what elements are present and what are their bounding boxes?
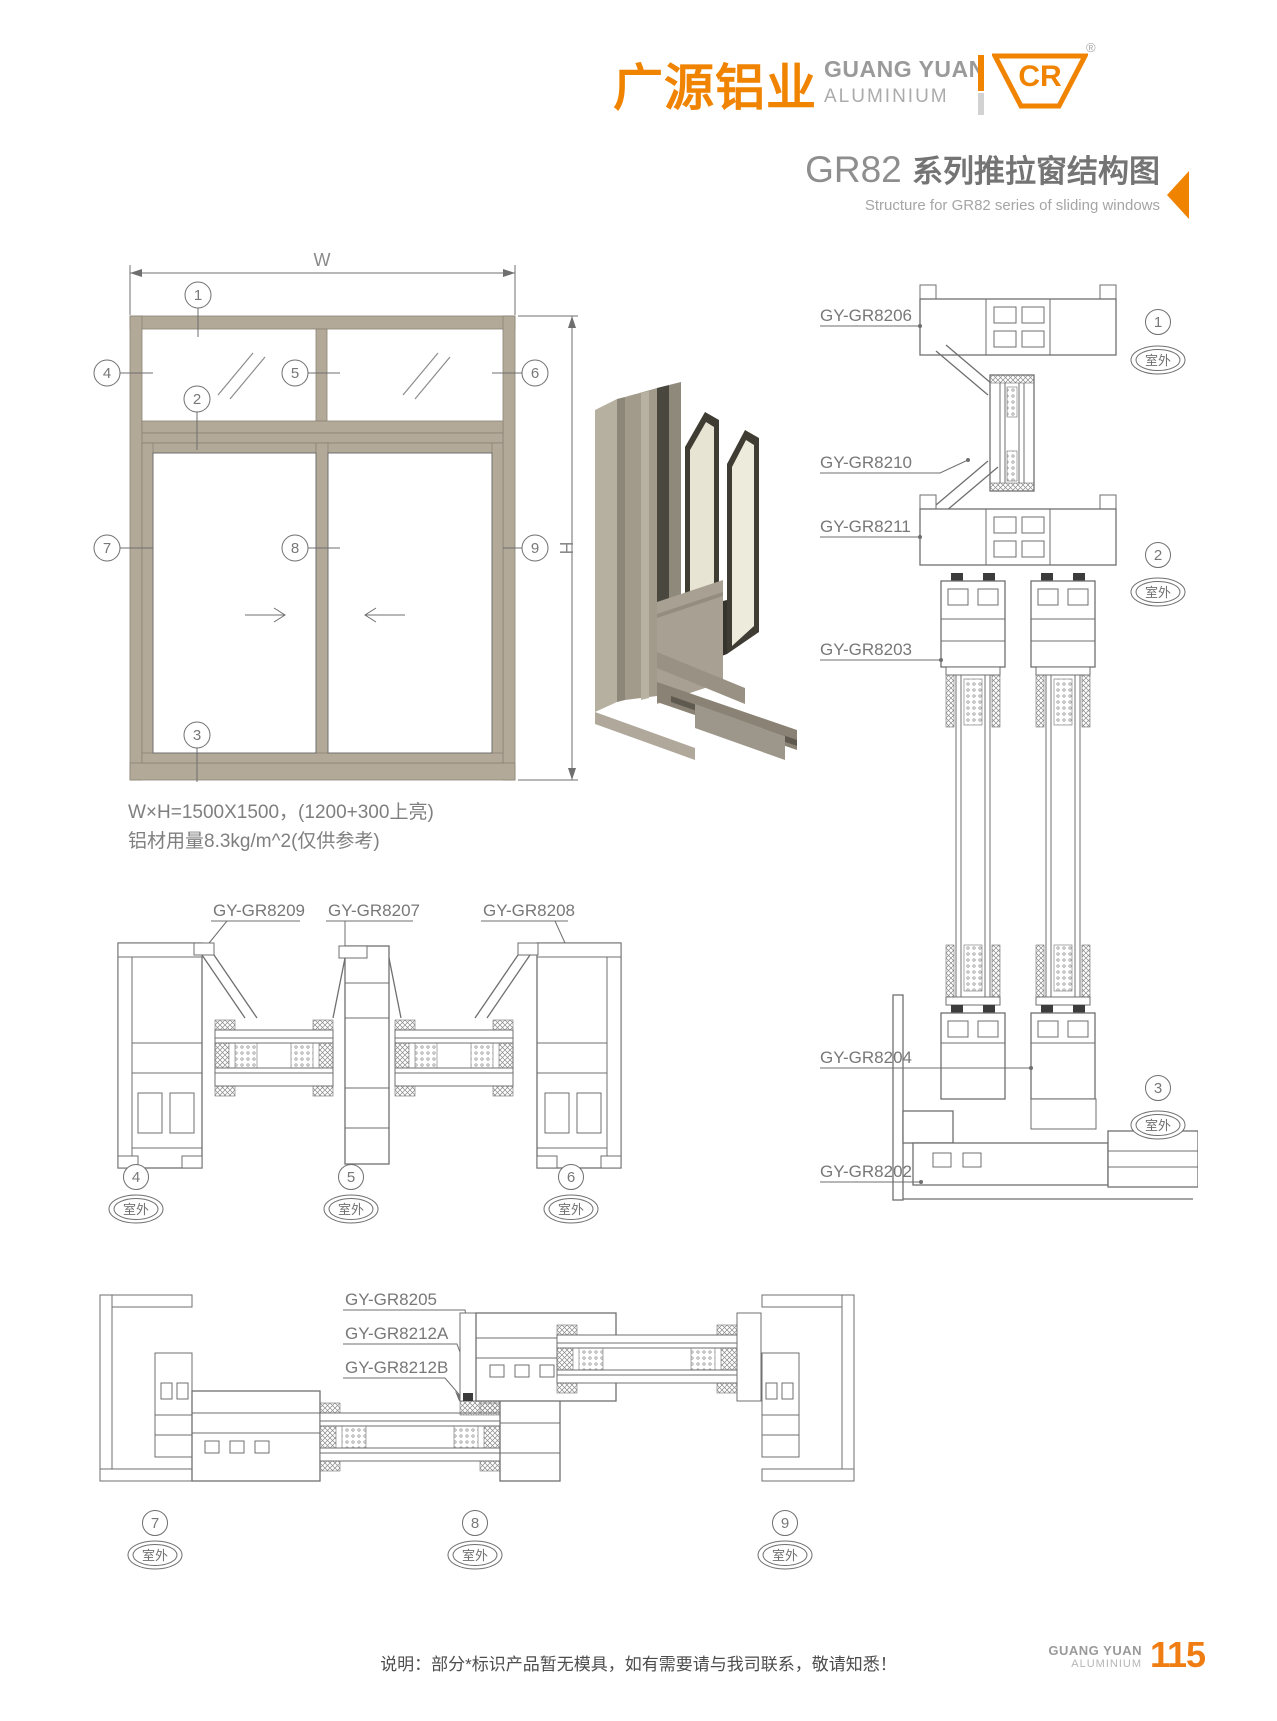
callout-5: 5 xyxy=(282,360,340,386)
callout-4: 4 室外 xyxy=(109,1165,163,1224)
svg-text:GY-GR8204: GY-GR8204 xyxy=(820,1048,912,1067)
callout-7: 7 室外 xyxy=(128,1511,182,1570)
horizontal-section-mid-drawing: GY-GR8209 GY-GR8207 GY-GR8208 xyxy=(95,888,655,1228)
outdoor-tag: 室外 xyxy=(338,1202,364,1217)
outdoor-tag: 室外 xyxy=(1145,1118,1171,1133)
svg-text:GY-GR8202: GY-GR8202 xyxy=(820,1162,912,1181)
logo-english-line1: GUANG YUAN xyxy=(824,56,986,83)
vertical-section-drawing: GY-GR8206 GY-GR8210 GY-GR8211 GY-GR8203 … xyxy=(818,255,1198,1215)
registered-trademark-icon: ® xyxy=(1086,40,1096,55)
callout-3: 3 室外 xyxy=(1131,1076,1185,1140)
callout-4: 4 xyxy=(94,360,153,386)
profile-label: GY-GR8210 xyxy=(820,453,970,473)
profile-label: GY-GR8203 xyxy=(820,640,943,662)
svg-text:GY-GR8205: GY-GR8205 xyxy=(345,1290,437,1309)
logo-divider-top xyxy=(978,55,984,91)
profile-label: GY-GR8202 xyxy=(820,1162,923,1184)
outdoor-tag: 室外 xyxy=(1145,353,1171,368)
catalog-page: 广源铝业 GUANG YUAN ALUMINIUM CR ® GR82 系列推拉… xyxy=(0,0,1277,1721)
outdoor-tag: 室外 xyxy=(123,1202,149,1217)
profile-label: GY-GR8207 xyxy=(326,901,420,946)
svg-text:1: 1 xyxy=(1154,314,1162,331)
svg-text:7: 7 xyxy=(151,1515,159,1532)
outdoor-tag: 室外 xyxy=(1145,585,1171,600)
callout-2: 2 室外 xyxy=(1131,543,1185,607)
svg-text:GY-GR8207: GY-GR8207 xyxy=(328,901,420,920)
logo-chinese: 广源铝业 xyxy=(613,48,817,120)
logo-divider-bottom xyxy=(978,93,984,115)
footer-brand: GUANG YUAN ALUMINIUM xyxy=(1002,1644,1142,1670)
svg-text:1: 1 xyxy=(194,287,202,304)
svg-text:5: 5 xyxy=(347,1169,355,1186)
svg-text:9: 9 xyxy=(781,1515,789,1532)
cr-logo-icon: CR xyxy=(992,44,1088,114)
outdoor-tag: 室外 xyxy=(558,1202,584,1217)
title-chinese: 系列推拉窗结构图 xyxy=(912,154,1160,189)
svg-text:4: 4 xyxy=(132,1169,140,1186)
svg-text:GY-GR8209: GY-GR8209 xyxy=(213,901,305,920)
dim-label-w: W xyxy=(314,250,331,270)
svg-text:4: 4 xyxy=(103,365,111,382)
callout-6: 6 xyxy=(492,360,548,386)
callout-1: 1 室外 xyxy=(1131,310,1185,375)
profile-label: GY-GR8211 xyxy=(820,517,922,539)
svg-text:GY-GR8208: GY-GR8208 xyxy=(483,901,575,920)
footer-brand-line1: GUANG YUAN xyxy=(1002,1644,1142,1658)
profile-label: GY-GR8212B xyxy=(343,1358,463,1401)
outdoor-tag: 室外 xyxy=(462,1548,488,1563)
profile-label: GY-GR8206 xyxy=(820,306,922,328)
profile-label: GY-GR8209 xyxy=(205,901,305,948)
spec-aluminium-usage: 铝材用量8.3kg/m^2(仅供参考) xyxy=(128,826,380,853)
svg-text:8: 8 xyxy=(471,1515,479,1532)
svg-text:3: 3 xyxy=(1154,1080,1162,1097)
svg-text:GY-GR8212B: GY-GR8212B xyxy=(345,1358,448,1377)
logo-english-line2: ALUMINIUM xyxy=(824,86,949,108)
page-subtitle: Structure for GR82 series of sliding win… xyxy=(500,197,1160,214)
svg-text:GY-GR8212A: GY-GR8212A xyxy=(345,1324,449,1343)
footer-brand-line2: ALUMINIUM xyxy=(1002,1658,1142,1670)
svg-text:5: 5 xyxy=(291,365,299,382)
svg-text:2: 2 xyxy=(1154,547,1162,564)
svg-text:6: 6 xyxy=(567,1169,575,1186)
svg-text:9: 9 xyxy=(531,540,539,557)
elevation-drawing: W H xyxy=(78,235,578,795)
page-number: 115 xyxy=(1150,1634,1205,1676)
profile-label: GY-GR8205 xyxy=(343,1290,467,1321)
callout-6: 6 室外 xyxy=(544,1165,598,1224)
profile-3d-render xyxy=(545,352,807,767)
svg-text:GY-GR8210: GY-GR8210 xyxy=(820,453,912,472)
title-arrow-icon xyxy=(1167,171,1189,219)
spec-dimensions: W×H=1500X1500，(1200+300上亮) xyxy=(128,797,434,824)
outdoor-tag: 室外 xyxy=(772,1548,798,1563)
svg-text:3: 3 xyxy=(193,727,201,744)
profile-label: GY-GR8208 xyxy=(481,901,575,943)
svg-text:GY-GR8211: GY-GR8211 xyxy=(820,517,911,536)
callout-9: 9 室外 xyxy=(758,1511,812,1570)
svg-text:8: 8 xyxy=(291,540,299,557)
cr-logo-letters: CR xyxy=(1018,60,1062,93)
callout-8: 8 室外 xyxy=(448,1511,502,1570)
callout-5: 5 室外 xyxy=(324,1165,378,1224)
svg-text:7: 7 xyxy=(103,540,111,557)
profile-label: GY-GR8212A xyxy=(343,1324,461,1355)
horizontal-section-bottom-drawing: GY-GR8205 GY-GR8212A GY-GR8212B xyxy=(95,1283,905,1593)
svg-text:6: 6 xyxy=(531,365,539,382)
page-title: GR82 系列推拉窗结构图 xyxy=(500,146,1160,191)
svg-text:GY-GR8203: GY-GR8203 xyxy=(820,640,912,659)
svg-text:2: 2 xyxy=(193,391,201,408)
outdoor-tag: 室外 xyxy=(142,1548,168,1563)
svg-text:GY-GR8206: GY-GR8206 xyxy=(820,306,912,325)
title-series: GR82 xyxy=(805,149,912,190)
